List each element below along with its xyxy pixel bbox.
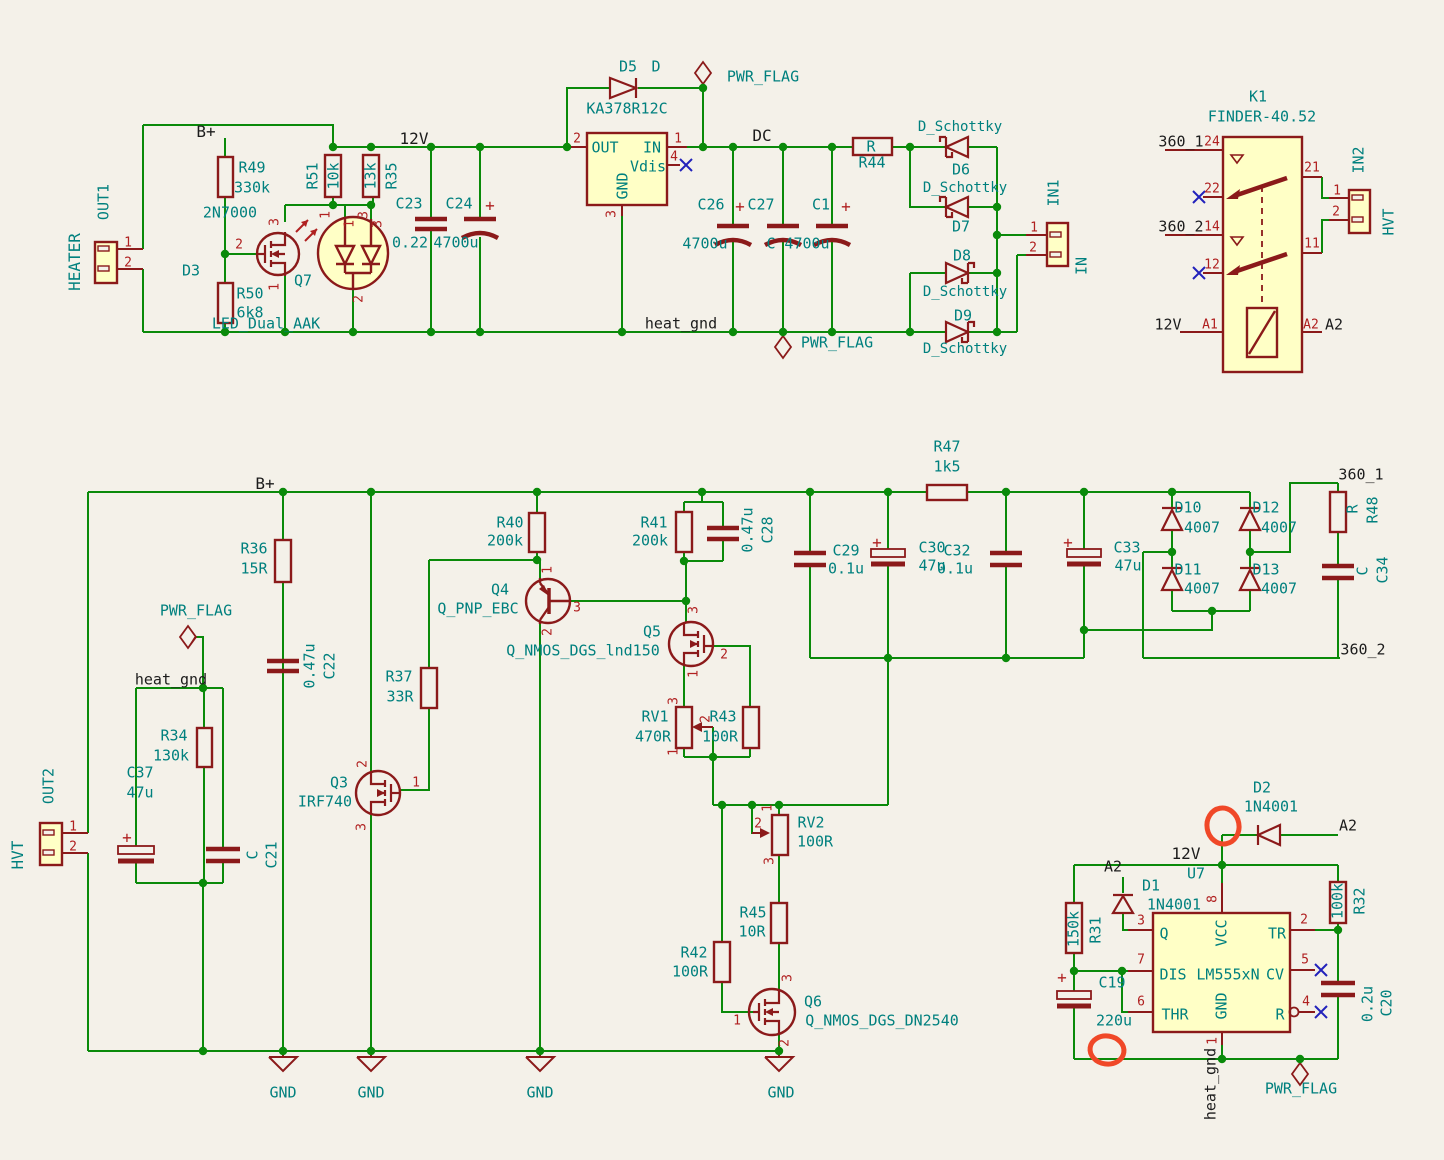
net-heatgnd-555[interactable]: heat_gnd [1204, 1048, 1219, 1120]
pin[interactable]: 1 [688, 670, 701, 678]
val-r36[interactable]: 15R [240, 562, 267, 577]
plus[interactable]: + [872, 535, 882, 551]
ref-r50[interactable]: R50 [236, 287, 263, 302]
val-c20[interactable]: 0.2u [1361, 986, 1376, 1022]
transistor-Q4-pnp[interactable] [526, 578, 570, 624]
connector-out2[interactable] [40, 823, 62, 865]
val-d2[interactable]: 1N4001 [1244, 800, 1298, 815]
ref-c22[interactable]: C22 [323, 652, 338, 679]
val-q7[interactable]: 2N7000 [203, 206, 257, 221]
val-c33[interactable]: 47u [1114, 559, 1141, 574]
conn-out1-ref[interactable]: OUT1 [97, 184, 112, 220]
transistor-Q6-nmos[interactable] [749, 989, 795, 1035]
pin[interactable]: 5 [1301, 954, 1309, 967]
val-d5[interactable]: D [651, 60, 660, 75]
pin[interactable]: 3 [764, 857, 777, 865]
ref-c29[interactable]: C29 [832, 544, 859, 559]
net-dc[interactable]: DC [752, 128, 771, 144]
ref-r44[interactable]: R44 [858, 156, 885, 171]
ref-r43[interactable]: R43 [709, 710, 736, 725]
pinname-r[interactable]: R [1275, 1008, 1284, 1023]
wires-top-section [143, 84, 1026, 336]
pin[interactable]: 4 [1302, 996, 1310, 1009]
ref-r45[interactable]: R45 [739, 906, 766, 921]
connector-in1[interactable] [1047, 223, 1068, 266]
ref-d7[interactable]: D7 [952, 220, 970, 235]
resistor-R34 [197, 728, 212, 767]
pinname-q[interactable]: Q [1159, 927, 1168, 942]
gnd[interactable]: GND [269, 1086, 296, 1101]
val-rv1[interactable]: 470R [635, 730, 671, 745]
ref-c30[interactable]: C30 [918, 541, 945, 556]
pin[interactable]: 1 [269, 283, 282, 291]
ref-q6[interactable]: Q6 [804, 995, 822, 1010]
net-360-1-relay[interactable]: 360_1 [1158, 135, 1203, 150]
pin[interactable]: A1 [1202, 319, 1218, 332]
ref-c34[interactable]: C34 [1376, 556, 1391, 583]
conn-out1-name[interactable]: HEATER [67, 233, 83, 291]
ref-k1[interactable]: K1 [1249, 90, 1267, 105]
gnd-symbols[interactable] [269, 1051, 793, 1071]
val-r37[interactable]: 33R [386, 690, 413, 705]
val-r31[interactable]: 150k [1067, 911, 1082, 947]
val-r42[interactable]: 100R [672, 965, 708, 980]
capacitor-C21 [206, 849, 240, 861]
val-d7[interactable]: D_Schottky [923, 181, 1007, 195]
ref-c1[interactable]: C1 [812, 198, 830, 213]
val-rv2[interactable]: 100R [797, 835, 833, 850]
val-r32[interactable]: 100k [1331, 883, 1346, 919]
diode-D6-schottky [940, 137, 968, 157]
capacitors-flat[interactable] [206, 219, 1355, 995]
pin[interactable]: 11 [1304, 238, 1320, 251]
plus[interactable]: + [485, 198, 495, 214]
net-a2-relay[interactable]: A2 [1325, 318, 1343, 333]
val-r47[interactable]: 1k5 [933, 460, 960, 475]
pin[interactable]: 24 [1204, 136, 1220, 149]
conn-in2-ref[interactable]: IN2 [1352, 146, 1367, 173]
val-d8[interactable]: D_Schottky [923, 285, 1007, 299]
val-c28[interactable]: 0.47u [741, 507, 756, 552]
transistor-Q5-nmos[interactable] [669, 622, 713, 666]
capacitor-C34 [1322, 566, 1354, 578]
ref-u7[interactable]: U7 [1187, 867, 1205, 882]
net-a2-d1[interactable]: A2 [1104, 860, 1122, 875]
pin[interactable]: 3 [358, 211, 371, 219]
ref-c26[interactable]: C26 [697, 198, 724, 213]
val-ureg[interactable]: KA378R12C [586, 102, 667, 117]
pin[interactable]: 3 [668, 697, 681, 705]
ref-d10[interactable]: D10 [1174, 501, 1201, 516]
val-c34[interactable]: C [1356, 566, 1371, 575]
ref-d9[interactable]: D9 [954, 309, 972, 324]
capacitor-C23 [415, 219, 447, 229]
val-q4[interactable]: Q_PNP_EBC [437, 602, 518, 617]
ref-c32[interactable]: C32 [943, 544, 970, 559]
transistor-Q3-irf740[interactable] [356, 771, 400, 815]
val-r45[interactable]: 10R [738, 925, 765, 940]
ref-d1[interactable]: D1 [1142, 879, 1160, 894]
ref-r34[interactable]: R34 [160, 729, 187, 744]
ref-c19[interactable]: C19 [1098, 976, 1125, 991]
pin[interactable]: 2 [124, 257, 132, 270]
val-c29[interactable]: 0.1u [828, 562, 864, 577]
pwr-flag[interactable]: PWR_FLAG [801, 336, 873, 351]
pin[interactable]: 12 [1204, 259, 1220, 272]
pin[interactable]: 1 [733, 1015, 741, 1028]
connector-out1[interactable] [95, 242, 117, 283]
resistor-R36 [275, 540, 291, 582]
ref-c24[interactable]: C24 [445, 197, 472, 212]
ref-d8[interactable]: D8 [953, 249, 971, 264]
pin[interactable]: 2 [69, 841, 77, 854]
net-360-2-relay[interactable]: 360_2 [1158, 220, 1203, 235]
pin[interactable]: 2 [353, 295, 366, 303]
net-a2-d2[interactable]: A2 [1339, 819, 1357, 834]
val-c22[interactable]: 0.47u [303, 643, 318, 688]
pin[interactable]: 1 [542, 566, 555, 574]
diode-D7-schottky [940, 197, 968, 217]
pin[interactable]: 14 [1204, 221, 1220, 234]
pin[interactable]: 3 [782, 974, 795, 982]
resistor-R45 [771, 903, 787, 943]
ref-d13[interactable]: D13 [1252, 563, 1279, 578]
pwr-flag[interactable]: PWR_FLAG [1265, 1082, 1337, 1097]
pin[interactable]: 4 [670, 151, 678, 164]
resistor-R47 [927, 485, 967, 500]
pinname-thr[interactable]: THR [1161, 1008, 1188, 1023]
capacitor-C32 [990, 553, 1022, 565]
net-bplus-mid[interactable]: B+ [255, 476, 274, 492]
ref-q4[interactable]: Q4 [491, 583, 509, 598]
ref-r42[interactable]: R42 [680, 946, 707, 961]
resistor-R42 [714, 942, 730, 982]
resistor-R40 [529, 513, 545, 552]
ref-c21[interactable]: C21 [265, 841, 280, 868]
ref-d3[interactable]: D3 [182, 264, 200, 279]
net-360-1[interactable]: 360_1 [1338, 468, 1383, 483]
ref-q3[interactable]: Q3 [330, 776, 348, 791]
pin[interactable]: 8 [1207, 895, 1220, 903]
val-c24[interactable]: 4700u [433, 236, 478, 251]
ref-d11[interactable]: D11 [1174, 563, 1201, 578]
pin[interactable]: 2 [1300, 914, 1308, 927]
val-c23[interactable]: 0.22 [392, 236, 428, 251]
diode-D1 [1113, 895, 1133, 913]
gnd[interactable]: GND [526, 1086, 553, 1101]
pin[interactable]: 3 [372, 220, 385, 228]
conn-in1-ref[interactable]: IN1 [1047, 179, 1062, 206]
resistor-R49 [218, 157, 233, 197]
ref-r47[interactable]: R47 [933, 440, 960, 455]
val-r48[interactable]: R [1346, 504, 1361, 513]
schematic-canvas: HEATEROUT112B+R49330k2N7000D3231R506k8LE… [0, 0, 1444, 1160]
val-u7[interactable]: LM555xN [1196, 968, 1259, 983]
val-c26[interactable]: 4700u [682, 237, 727, 252]
diode-D5 [610, 78, 636, 98]
net-heatgnd-top[interactable]: heat_gnd [645, 317, 717, 332]
val-r34[interactable]: 130k [153, 749, 189, 764]
pin[interactable]: 2 [1029, 242, 1037, 255]
pin[interactable]: 3 [606, 210, 619, 218]
val-c21[interactable]: C [246, 850, 261, 859]
transistor-Q7-2N7000[interactable] [257, 232, 299, 276]
resistor-R43 [743, 707, 759, 748]
resistor-R41 [676, 512, 692, 552]
val-r40[interactable]: 200k [487, 534, 523, 549]
pinname-vdis[interactable]: Vdis [630, 160, 666, 175]
net-12v-top[interactable]: 12V [400, 131, 429, 147]
ref-rv1[interactable]: RV1 [641, 710, 668, 725]
val-r41[interactable]: 200k [632, 534, 668, 549]
pin[interactable]: 2 [1332, 206, 1340, 219]
pinname-dis[interactable]: DIS [1159, 968, 1186, 983]
diode-D9-schottky [946, 322, 974, 342]
pin[interactable]: 1 [412, 777, 420, 790]
plus[interactable]: + [735, 199, 745, 215]
pinname-vcc[interactable]: VCC [1215, 919, 1230, 946]
val-d11[interactable]: 4007 [1184, 582, 1220, 597]
val-q6[interactable]: Q_NMOS_DGS_DN2540 [805, 1014, 959, 1029]
ref-r51[interactable]: R51 [306, 162, 321, 189]
val-d12[interactable]: 4007 [1261, 521, 1297, 536]
plus[interactable]: + [841, 199, 851, 215]
pinname-cv[interactable]: CV [1266, 968, 1284, 983]
capacitor-C37 [118, 846, 154, 861]
pwr-flag[interactable]: PWR_FLAG [727, 70, 799, 85]
pin[interactable]: 1 [1030, 222, 1038, 235]
relay-K1[interactable] [1223, 137, 1302, 372]
pin[interactable]: 7 [1137, 954, 1145, 967]
resistor-R37 [421, 668, 437, 708]
pinname-tr[interactable]: TR [1268, 927, 1286, 942]
val-d6[interactable]: D_Schottky [918, 120, 1002, 134]
pinname-gnd2[interactable]: GND [1215, 992, 1230, 1019]
conn-in1-name[interactable]: IN [1075, 257, 1090, 275]
val-r51[interactable]: 10k [327, 162, 342, 189]
pwr-flag-heatgnd [775, 336, 791, 358]
net-bplus-top[interactable]: B+ [196, 124, 215, 140]
net-12v-555[interactable]: 12V [1172, 846, 1201, 862]
conn-in2-name[interactable]: HVT [1382, 208, 1397, 235]
ref-q7[interactable]: Q7 [294, 274, 312, 289]
plus[interactable]: + [1063, 535, 1073, 551]
ref-c37[interactable]: C37 [126, 766, 153, 781]
pin[interactable]: 2 [235, 239, 243, 252]
potentiometer-RV1 [676, 707, 692, 748]
val-c1[interactable]: 4700u [784, 237, 829, 252]
pin[interactable]: 1 [344, 220, 357, 228]
val-d3[interactable]: LED_Dual_AAK [212, 317, 320, 332]
val-q3[interactable]: IRF740 [298, 795, 352, 810]
diode-D2 [1258, 825, 1280, 845]
ref-c28[interactable]: C28 [761, 516, 776, 543]
pin[interactable]: 2 [720, 649, 728, 662]
net-360-2[interactable]: 360_2 [1340, 643, 1385, 658]
capacitor-C29 [794, 553, 826, 565]
ref-c20[interactable]: C20 [1380, 989, 1395, 1016]
pin[interactable]: 22 [1204, 183, 1220, 196]
ref-r36[interactable]: R36 [240, 542, 267, 557]
ref-d5[interactable]: D5 [619, 60, 637, 75]
pwr-flag[interactable]: PWR_FLAG [160, 604, 232, 619]
pin[interactable]: 1 [674, 133, 682, 146]
pin[interactable]: 2 [573, 133, 581, 146]
val-c37[interactable]: 47u [126, 786, 153, 801]
ref-q5[interactable]: Q5 [643, 625, 661, 640]
diode-D8-schottky [946, 263, 974, 283]
pin[interactable]: 3 [688, 606, 701, 614]
pin[interactable]: 1 [762, 804, 775, 812]
ref-d12[interactable]: D12 [1252, 501, 1279, 516]
pinname-out[interactable]: OUT [591, 141, 618, 156]
potentiometer-RV2 [772, 815, 788, 855]
capacitors-polarized[interactable] [118, 549, 1101, 1006]
val-c27[interactable]: C [766, 237, 775, 252]
gnd[interactable]: GND [357, 1086, 384, 1101]
conn-out2-ref[interactable]: OUT2 [42, 768, 57, 804]
gnd[interactable]: GND [767, 1086, 794, 1101]
val-k1[interactable]: FINDER-40.52 [1208, 110, 1316, 125]
pin[interactable]: 3 [573, 602, 581, 615]
pin[interactable]: 2 [779, 1039, 792, 1047]
ref-r48[interactable]: R48 [1366, 496, 1381, 523]
pin[interactable]: 1 [69, 821, 77, 834]
pinname-gnd[interactable]: GND [616, 172, 631, 199]
capacitor-C20 [1321, 983, 1355, 995]
pin[interactable]: 1 [320, 211, 333, 219]
val-d9[interactable]: D_Schottky [923, 342, 1007, 356]
ref-c33[interactable]: C33 [1113, 541, 1140, 556]
plus[interactable]: + [122, 830, 132, 846]
pwr-flag-top [695, 62, 711, 84]
net-12v-relay[interactable]: 12V [1154, 318, 1181, 333]
val-r35[interactable]: 13k [364, 162, 379, 189]
val-d1[interactable]: 1N4001 [1147, 898, 1201, 913]
val-q5[interactable]: Q_NMOS_DGS_lnd150 [506, 644, 660, 659]
ref-rv2[interactable]: RV2 [797, 816, 824, 831]
val-r49[interactable]: 330k [234, 181, 270, 196]
val-d10[interactable]: 4007 [1184, 521, 1220, 536]
val-c32[interactable]: 0.1u [937, 562, 973, 577]
pin[interactable]: 3 [356, 823, 369, 831]
ref-r32[interactable]: R32 [1353, 887, 1368, 914]
pwr-flag-mid [180, 626, 196, 648]
ref-d6[interactable]: D6 [952, 163, 970, 178]
capacitor-C19 [1057, 991, 1091, 1006]
pin[interactable]: 21 [1304, 162, 1320, 175]
pin[interactable]: A2 [1303, 319, 1319, 332]
ref-c23[interactable]: C23 [395, 197, 422, 212]
val-d13[interactable]: 4007 [1261, 582, 1297, 597]
pin[interactable]: 1 [124, 237, 132, 250]
pin[interactable]: 2 [357, 760, 370, 768]
pin[interactable]: 1 [1207, 1037, 1220, 1045]
pin[interactable]: 3 [1137, 915, 1145, 928]
pinname-in[interactable]: IN [643, 141, 661, 156]
pin[interactable]: 3 [269, 218, 282, 226]
wires-relay-section [1322, 177, 1329, 253]
val-r43[interactable]: 100R [702, 730, 738, 745]
ref-c27[interactable]: C27 [747, 198, 774, 213]
pin[interactable]: 1 [668, 748, 681, 756]
ref-r41[interactable]: R41 [640, 516, 667, 531]
ref-r35[interactable]: R35 [385, 162, 400, 189]
ref-r31[interactable]: R31 [1089, 916, 1104, 943]
pin[interactable]: 2 [542, 628, 555, 636]
ref-d2[interactable]: D2 [1253, 781, 1271, 796]
ref-r37[interactable]: R37 [385, 670, 412, 685]
pin[interactable]: 6 [1137, 996, 1145, 1009]
val-c19[interactable]: 220u [1096, 1014, 1132, 1029]
ref-r49[interactable]: R49 [238, 161, 265, 176]
ref-r40[interactable]: R40 [496, 516, 523, 531]
plus[interactable]: + [1057, 970, 1067, 986]
net-heatgnd-mid[interactable]: heat_gnd [135, 673, 207, 688]
pin[interactable]: 2 [754, 818, 762, 831]
pin[interactable]: 1 [1333, 185, 1341, 198]
connector-in2[interactable] [1349, 190, 1370, 233]
val-r44[interactable]: R [866, 140, 875, 155]
conn-out2-name[interactable]: HVT [10, 841, 26, 870]
capacitor-C28 [707, 528, 739, 539]
